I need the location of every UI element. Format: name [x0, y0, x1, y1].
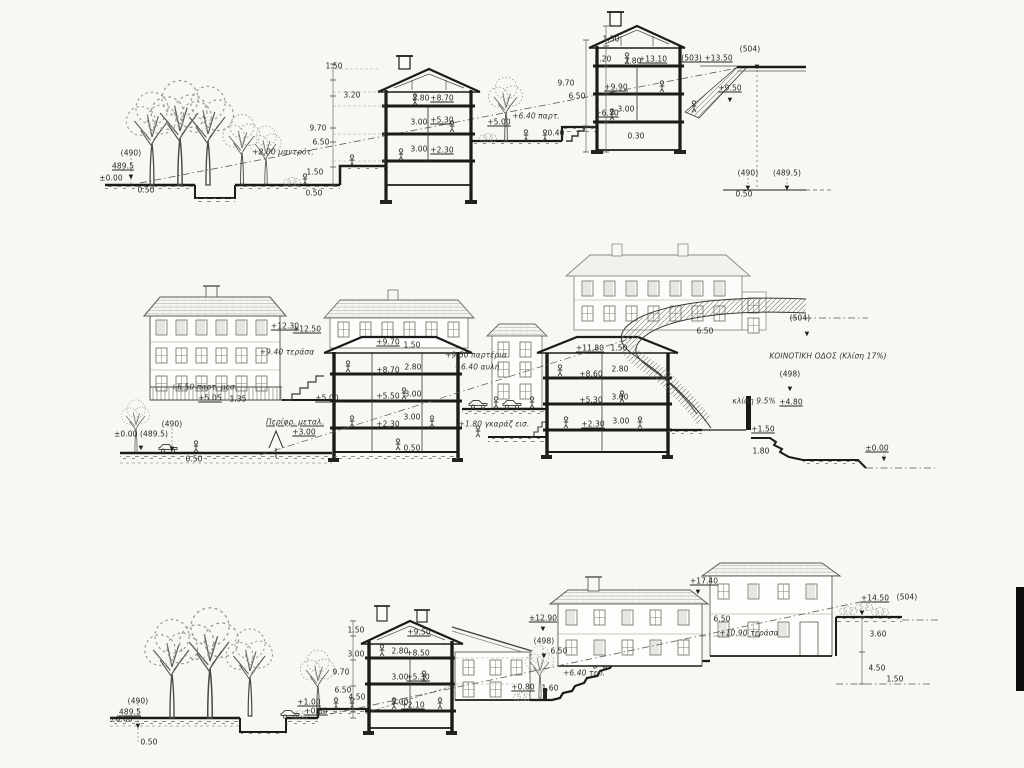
scan-artifact	[1016, 587, 1024, 691]
drawing-linework	[0, 0, 1024, 768]
architectural-drawing-sheet: (490)489.5±0.00▼0.50+2.00 μαντρότ.9.706.…	[0, 0, 1024, 768]
middle-elevation-section-drawing	[120, 244, 935, 468]
upper-cross-section-drawing	[105, 12, 834, 204]
lower-cross-section-drawing	[110, 563, 940, 742]
